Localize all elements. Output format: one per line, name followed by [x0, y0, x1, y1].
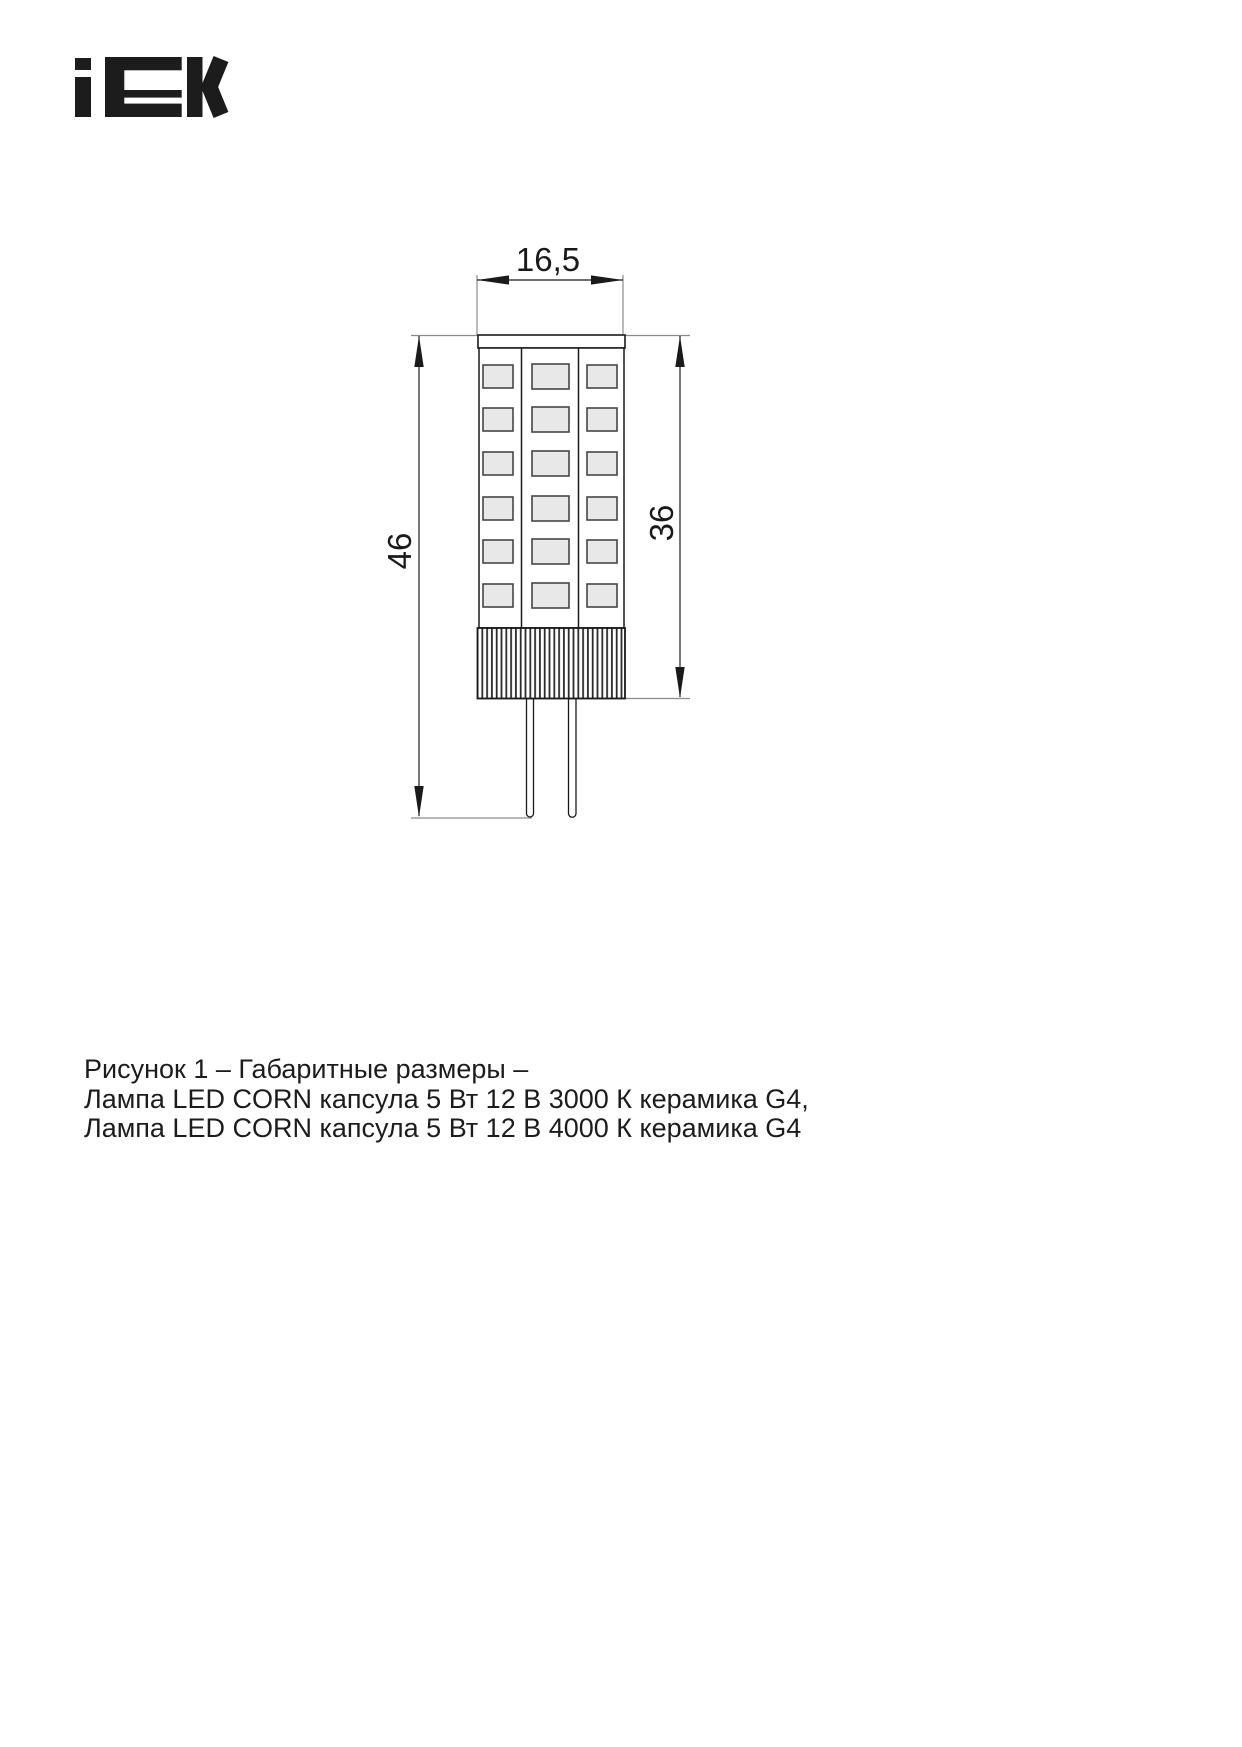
figure-caption: Рисунок 1 – Габаритные размеры – Лампа L… [84, 1055, 809, 1144]
led-chip [532, 407, 569, 432]
lamp-pin [569, 699, 577, 818]
arrow-up-icon [414, 336, 423, 367]
led-chip [532, 583, 569, 608]
led-chip [483, 408, 513, 431]
led-chip [587, 497, 617, 520]
logo-i-stem [75, 77, 91, 117]
led-chip [587, 584, 617, 607]
led-chip [483, 365, 513, 388]
logo-k [187, 57, 221, 117]
arrow-up-icon [675, 336, 684, 367]
lamp-pin [527, 699, 534, 818]
dim-width-label: 16,5 [516, 241, 580, 278]
arrow-down-icon [414, 786, 423, 817]
led-chip [587, 365, 617, 388]
led-chip [532, 496, 569, 521]
led-chip [587, 452, 617, 475]
lamp-top-cap [478, 335, 625, 348]
led-chip [483, 452, 513, 475]
caption-line: Лампа LED CORN капсула 5 Вт 12 В 3000 К … [84, 1085, 809, 1115]
caption-line: Рисунок 1 – Габаритные размеры – [84, 1055, 809, 1085]
dim-overall-height-label: 46 [381, 533, 418, 570]
iek-logo [75, 57, 221, 117]
led-chip [532, 451, 569, 476]
led-chip [483, 584, 513, 607]
led-chip [587, 408, 617, 431]
led-chip [483, 540, 513, 563]
arrow-right-icon [591, 275, 623, 284]
logo-e [105, 57, 182, 117]
document-page: 16,5 46 36 Рисунок 1 – Габаритные размер… [0, 0, 1242, 1747]
led-chip [483, 497, 513, 520]
figure-drawing: 16,5 46 36 [0, 0, 1242, 1747]
logo-i-dot [75, 58, 91, 70]
arrow-left-icon [477, 275, 509, 284]
led-chip [587, 540, 617, 563]
lamp-drawing [478, 335, 626, 817]
led-chip [532, 539, 569, 564]
caption-line: Лампа LED CORN капсула 5 Вт 12 В 4000 К … [84, 1114, 809, 1144]
dim-body-height-label: 36 [643, 505, 680, 542]
led-chip [532, 364, 569, 389]
arrow-down-icon [675, 667, 684, 698]
lamp-ribbed-base [478, 628, 626, 699]
